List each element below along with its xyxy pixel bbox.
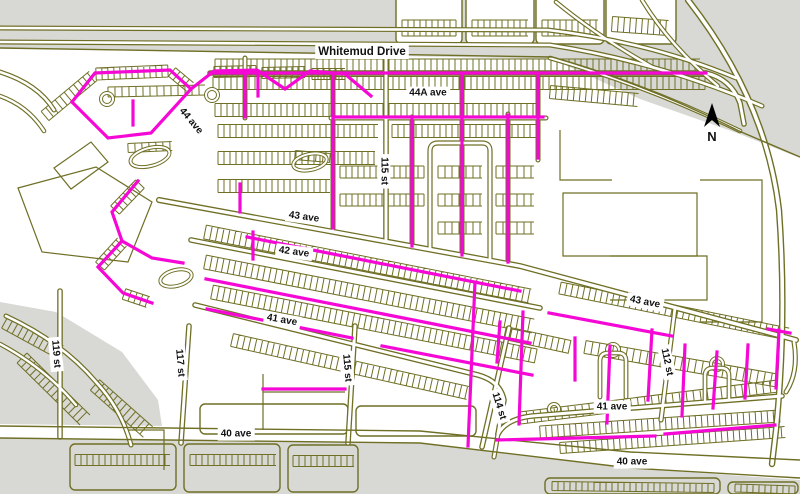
svg-text:Whitemud Drive: Whitemud Drive: [318, 46, 406, 58]
street-label: 115 st: [377, 154, 390, 188]
street-label: Whitemud Drive: [315, 45, 409, 59]
street-label: 44A ave: [406, 87, 450, 100]
map-canvas: Whitemud Drive44A ave44 ave115 st43 ave4…: [0, 0, 800, 494]
svg-text:44A ave: 44A ave: [409, 88, 447, 99]
svg-text:115 st: 115 st: [378, 157, 389, 185]
svg-text:40 ave: 40 ave: [617, 457, 648, 468]
street-label: 41 ave: [594, 401, 631, 414]
svg-text:40 ave: 40 ave: [221, 429, 252, 440]
svg-text:41 ave: 41 ave: [597, 402, 628, 413]
street-label: 40 ave: [218, 428, 255, 441]
svg-text:N: N: [707, 129, 716, 144]
street-label: 40 ave: [614, 456, 651, 469]
neighbourhood-street-map[interactable]: Whitemud Drive44A ave44 ave115 st43 ave4…: [0, 0, 800, 494]
